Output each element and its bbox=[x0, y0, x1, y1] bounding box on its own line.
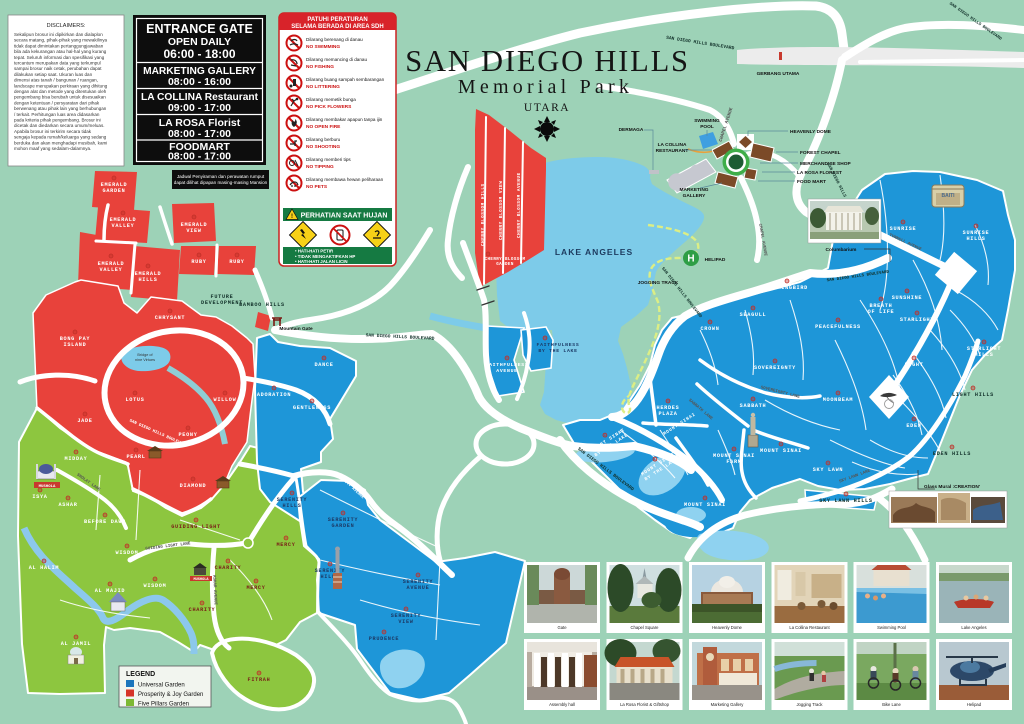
svg-text:OF LIFE: OF LIFE bbox=[868, 309, 895, 315]
svg-text:AL MAJID: AL MAJID bbox=[95, 588, 126, 594]
svg-text:dengan alat dan metode yang di: dengan alat dan metode yang ditentukan o… bbox=[14, 89, 107, 94]
svg-text:POOL: POOL bbox=[700, 124, 714, 130]
svg-text:EDEN: EDEN bbox=[906, 423, 921, 429]
svg-text:SKY LAWN HILLS: SKY LAWN HILLS bbox=[819, 498, 872, 504]
svg-text:PLAZA: PLAZA bbox=[658, 411, 677, 417]
svg-text:Columbarium: Columbarium bbox=[826, 247, 857, 253]
svg-text:MUSHOLA: MUSHOLA bbox=[39, 485, 56, 489]
svg-text:H: H bbox=[687, 254, 694, 265]
svg-text:HILLS: HILLS bbox=[282, 503, 301, 509]
svg-text:• HATI-HATI JALAN LICIN: • HATI-HATI JALAN LICIN bbox=[295, 259, 348, 264]
svg-text:LIGHT HILLS: LIGHT HILLS bbox=[952, 392, 994, 398]
svg-text:CROWN: CROWN bbox=[700, 326, 719, 332]
svg-text:GENTLENESS: GENTLENESS bbox=[293, 405, 331, 411]
svg-text:BEFORE DAWN: BEFORE DAWN bbox=[84, 519, 126, 525]
svg-text:RESTAURANT: RESTAURANT bbox=[656, 148, 689, 154]
svg-text:Dilarang berburu: Dilarang berburu bbox=[306, 137, 341, 142]
svg-text:Apabila brosur ini terkirim se: Apabila brosur ini terkirim secara tidak bbox=[14, 129, 92, 134]
svg-text:Heavenly Dome: Heavenly Dome bbox=[712, 625, 742, 630]
svg-text:CHERRY BLOSSOM HILLS: CHERRY BLOSSOM HILLS bbox=[481, 183, 486, 246]
svg-text:CHARITY: CHARITY bbox=[215, 565, 242, 571]
svg-text:Universal Garden: Universal Garden bbox=[138, 683, 185, 689]
svg-text:STARLIGHT: STARLIGHT bbox=[900, 317, 934, 323]
svg-text:GERBANG UTAMA: GERBANG UTAMA bbox=[757, 71, 800, 77]
svg-text:DISCLAIMERS:: DISCLAIMERS: bbox=[47, 23, 86, 29]
svg-text:MERCY: MERCY bbox=[246, 585, 265, 591]
svg-text:HUMMINGBIRD: HUMMINGBIRD bbox=[766, 285, 808, 291]
svg-text:WISDOM: WISDOM bbox=[116, 550, 139, 556]
svg-text:Mountain Gate: Mountain Gate bbox=[279, 326, 313, 332]
svg-text:Dilarang berenang di danau: Dilarang berenang di danau bbox=[306, 37, 363, 42]
svg-text:Dilarang buang sampah sembaran: Dilarang buang sampah sembarangan bbox=[306, 77, 385, 82]
svg-text:DEVELOPMENT: DEVELOPMENT bbox=[201, 300, 243, 306]
svg-text:Dilarang memberi tips: Dilarang memberi tips bbox=[306, 157, 351, 162]
svg-text:BY THE LAKE: BY THE LAKE bbox=[538, 348, 577, 354]
svg-text:MOONBEAM: MOONBEAM bbox=[823, 397, 854, 403]
svg-text:DERMAGA: DERMAGA bbox=[619, 127, 644, 133]
svg-text:secara matang, pihak-pihak yan: secara matang, pihak-pihak yang mewakili… bbox=[14, 38, 107, 43]
svg-text:PEONY: PEONY bbox=[178, 432, 197, 438]
svg-text:NO FISHING: NO FISHING bbox=[306, 64, 334, 70]
svg-text:LAKE ANGELES: LAKE ANGELES bbox=[555, 247, 633, 257]
svg-text:08:00 - 17:00: 08:00 - 17:00 bbox=[168, 128, 231, 140]
svg-text:Lake Angeles: Lake Angeles bbox=[961, 625, 986, 630]
svg-text:PRUDENCE: PRUDENCE bbox=[369, 636, 400, 642]
svg-text:!: ! bbox=[291, 214, 293, 220]
svg-text:PATUHI PERATURAN: PATUHI PERATURAN bbox=[307, 17, 367, 23]
svg-text:FOOD MART: FOOD MART bbox=[797, 179, 826, 185]
svg-text:pengembang bisa berubah untuk: pengembang bisa berubah untuk disesuaika… bbox=[14, 95, 106, 100]
svg-text:pada kriteria pihak pengembang: pada kriteria pihak pengembang. Brosur i… bbox=[14, 118, 101, 123]
svg-text:ADORATION: ADORATION bbox=[257, 392, 291, 398]
svg-text:GUIDING LIGHT: GUIDING LIGHT bbox=[171, 524, 221, 530]
svg-text:SKY LAWN: SKY LAWN bbox=[813, 467, 844, 473]
svg-text:HILLS: HILLS bbox=[966, 236, 985, 242]
svg-text:NO SHOOTING: NO SHOOTING bbox=[306, 144, 340, 150]
svg-text:Dilarang membawa hewan pelihar: Dilarang membawa hewan peliharaan bbox=[306, 177, 384, 182]
svg-text:ISYA: ISYA bbox=[32, 494, 47, 500]
svg-text:RUBY: RUBY bbox=[229, 259, 244, 265]
svg-text:dilakukan setiap saat. Ukuran: dilakukan setiap saat. Ukuran luas dan bbox=[14, 72, 93, 77]
svg-text:DANCE: DANCE bbox=[314, 362, 333, 368]
svg-text:Jogging Track: Jogging Track bbox=[796, 702, 823, 707]
svg-text:NO TIPPING: NO TIPPING bbox=[306, 164, 334, 170]
svg-text:CHERRY BLOSSOM: CHERRY BLOSSOM bbox=[485, 258, 526, 262]
svg-text:sampai brosur naik cetak, peru: sampai brosur naik cetak, perubahan dapa… bbox=[14, 66, 102, 71]
svg-text:Assembly hall: Assembly hall bbox=[549, 702, 575, 707]
svg-text:SABBATH: SABBATH bbox=[740, 403, 767, 409]
svg-text:LOTUS: LOTUS bbox=[125, 397, 144, 403]
svg-text:La Collina Restaurant: La Collina Restaurant bbox=[789, 625, 830, 630]
svg-text:La Rosa Florist & Giftshop: La Rosa Florist & Giftshop bbox=[620, 702, 670, 707]
svg-text:tercantum merupakan data yang: tercantum merupakan data yang terkumpul bbox=[14, 61, 101, 66]
svg-text:Sekalipun brosur ini dipikirka: Sekalipun brosur ini dipikirkan dan dial… bbox=[14, 32, 103, 37]
svg-text:GALLERY: GALLERY bbox=[683, 193, 707, 199]
svg-text:• HATI-HATI PETIR: • HATI-HATI PETIR bbox=[295, 249, 334, 254]
svg-text:SWIMMING: SWIMMING bbox=[694, 118, 720, 124]
svg-text:nine Virtues: nine Virtues bbox=[135, 358, 155, 362]
svg-text:AVENUE: AVENUE bbox=[407, 585, 430, 591]
svg-text:MIDDAY: MIDDAY bbox=[65, 456, 88, 462]
svg-text:CHARITY: CHARITY bbox=[189, 607, 216, 613]
svg-text:DIAMOND: DIAMOND bbox=[180, 483, 207, 489]
svg-text:NO PETS: NO PETS bbox=[306, 184, 328, 190]
svg-text:Marketing Gallery: Marketing Gallery bbox=[711, 702, 745, 707]
svg-text:CHERRY BLOSSOM VIEW: CHERRY BLOSSOM VIEW bbox=[499, 181, 504, 240]
svg-text:ISLAND: ISLAND bbox=[64, 342, 87, 348]
svg-text:FOREST CHAPEL: FOREST CHAPEL bbox=[800, 150, 841, 156]
svg-text:VALLEY: VALLEY bbox=[100, 267, 123, 273]
svg-text:GARDEN: GARDEN bbox=[496, 263, 514, 267]
svg-text:NO OPEN FIRE: NO OPEN FIRE bbox=[306, 124, 341, 130]
svg-text:dicetak dan diedarkan secara u: dicetak dan diedarkan secara umum/meluas… bbox=[14, 123, 104, 128]
svg-text:VALLEY: VALLEY bbox=[112, 223, 135, 229]
svg-text:HILLS: HILLS bbox=[138, 277, 157, 283]
svg-text:Gate: Gate bbox=[557, 625, 567, 630]
svg-text:/ terkait. Perhitungan luas ar: / terkait. Perhitungan luas area didasar… bbox=[14, 112, 100, 117]
svg-text:06:00 - 18:00: 06:00 - 18:00 bbox=[163, 47, 235, 61]
svg-text:NO SWIMMING: NO SWIMMING bbox=[306, 44, 340, 50]
svg-text:PERHATIAN SAAT HUJAN: PERHATIAN SAAT HUJAN bbox=[301, 213, 388, 220]
svg-text:JADE: JADE bbox=[77, 418, 92, 424]
svg-text:Bridge of: Bridge of bbox=[137, 353, 153, 357]
svg-text:PEARL: PEARL bbox=[126, 454, 145, 460]
svg-text:Bike Lane: Bike Lane bbox=[882, 702, 901, 707]
svg-text:FAITHFULNESS: FAITHFULNESS bbox=[486, 362, 529, 368]
svg-text:Swimming Pool: Swimming Pool bbox=[877, 625, 906, 630]
svg-text:CHERRY BLOSSOM AVENUE: CHERRY BLOSSOM AVENUE bbox=[517, 172, 522, 238]
svg-text:Dilarang memancing di danau: Dilarang memancing di danau bbox=[306, 57, 367, 62]
svg-text:GARDEN: GARDEN bbox=[332, 523, 355, 529]
svg-text:BAMBOO HILLS: BAMBOO HILLS bbox=[239, 302, 285, 308]
svg-text:ASHAR: ASHAR bbox=[58, 502, 77, 508]
svg-text:AL HALIM: AL HALIM bbox=[29, 565, 60, 571]
svg-text:HEAVENLY DOME: HEAVENLY DOME bbox=[790, 129, 832, 135]
svg-text:sengaja kepada rumah/keluarga: sengaja kepada rumah/keluarga yang sedan… bbox=[14, 135, 107, 140]
svg-text:WILLOW: WILLOW bbox=[214, 397, 237, 403]
svg-text:GARDEN: GARDEN bbox=[103, 188, 126, 194]
svg-text:NO LITTERING: NO LITTERING bbox=[306, 84, 340, 90]
svg-text:FAITHFULNESS: FAITHFULNESS bbox=[537, 342, 580, 348]
svg-text:tepat. Seluruh informasi dan s: tepat. Seluruh informasi dan spesifikasi… bbox=[14, 55, 105, 60]
svg-text:AL JAMIL: AL JAMIL bbox=[61, 641, 92, 647]
svg-text:MERCY: MERCY bbox=[276, 542, 295, 548]
svg-text:08:00 - 17:00: 08:00 - 17:00 bbox=[168, 151, 231, 163]
svg-text:mohon maaf yang sedalam-dalamn: mohon maaf yang sedalam-dalamnya. bbox=[14, 146, 91, 151]
svg-text:CHRYSANT: CHRYSANT bbox=[155, 315, 186, 321]
svg-text:dimensi atas tanah / bangunan: dimensi atas tanah / bangunan / ruangan, bbox=[14, 78, 98, 83]
svg-text:Helipad: Helipad bbox=[967, 702, 982, 707]
svg-text:LIGHT: LIGHT bbox=[904, 362, 923, 368]
svg-text:SEAGULL: SEAGULL bbox=[740, 312, 767, 318]
svg-text:LA COLLINA: LA COLLINA bbox=[658, 142, 687, 148]
svg-text:Jadwal Penyiraman dan perawata: Jadwal Penyiraman dan perawatan rumput bbox=[177, 174, 265, 179]
svg-text:berwenang atau pihak lain yang: berwenang atau pihak lain yang berhubung… bbox=[14, 106, 107, 111]
svg-text:AVENUE: AVENUE bbox=[496, 368, 517, 374]
svg-text:SELAMA BERADA DI AREA SDH: SELAMA BERADA DI AREA SDH bbox=[291, 24, 383, 30]
svg-text:HILLS: HILLS bbox=[974, 352, 993, 358]
svg-text:Five Pillars Garden: Five Pillars Garden bbox=[138, 702, 189, 708]
svg-text:HELIPAD: HELIPAD bbox=[705, 257, 726, 263]
svg-text:bila ada kekurangan atau hal-h: bila ada kekurangan atau hal-hal yang ku… bbox=[14, 49, 107, 54]
svg-text:MOUNT SINAI: MOUNT SINAI bbox=[684, 502, 726, 508]
svg-text:landscape merupakan perkiraan: landscape merupakan perkiraan yang dihit… bbox=[14, 83, 108, 88]
svg-text:FITRAH: FITRAH bbox=[248, 677, 271, 683]
svg-text:SOVEREIGNTY: SOVEREIGNTY bbox=[754, 365, 796, 371]
svg-text:berduka dan akan menghadapi mu: berduka dan akan menghadapi musibah, kam… bbox=[14, 140, 107, 145]
svg-text:ENTRANCE GATE: ENTRANCE GATE bbox=[146, 22, 253, 36]
svg-text:SAN DIEGO HILLS: SAN DIEGO HILLS bbox=[405, 44, 690, 78]
svg-text:MUSHOLA: MUSHOLA bbox=[193, 578, 209, 582]
svg-text:PEACEFULNESS: PEACEFULNESS bbox=[815, 324, 861, 330]
svg-text:09:00 - 17:00: 09:00 - 17:00 bbox=[168, 102, 231, 114]
svg-text:NO PICK FLOWERS: NO PICK FLOWERS bbox=[306, 104, 352, 110]
svg-text:Chapel Square: Chapel Square bbox=[631, 625, 660, 630]
svg-text:SUNSHINE: SUNSHINE bbox=[892, 295, 923, 301]
svg-text:dapat dilihat dipapan masing-m: dapat dilihat dipapan masing-masing Mans… bbox=[174, 180, 268, 185]
svg-text:RUBY: RUBY bbox=[191, 259, 206, 265]
svg-text:Dilarang memetik bunga: Dilarang memetik bunga bbox=[306, 97, 356, 102]
svg-text:FARM: FARM bbox=[726, 459, 741, 465]
svg-text:LEGEND: LEGEND bbox=[126, 671, 155, 678]
svg-text:tidak dapat dimintakan pertang: tidak dapat dimintakan pertanggungjawaba… bbox=[14, 43, 104, 48]
svg-text:dengan ketentuan / persyaratan: dengan ketentuan / persyaratan dari piha… bbox=[14, 100, 100, 105]
svg-text:EDEN HILLS: EDEN HILLS bbox=[933, 451, 971, 457]
svg-text:Dilarang membakar apapun tanpa: Dilarang membakar apapun tanpa ijin bbox=[306, 117, 383, 122]
svg-text:MARKETING: MARKETING bbox=[679, 187, 708, 193]
svg-text:SUNRISE: SUNRISE bbox=[890, 226, 917, 232]
svg-text:WISDOM: WISDOM bbox=[144, 583, 167, 589]
svg-text:VIEW: VIEW bbox=[186, 228, 201, 234]
svg-text:Prosperity & Joy Garden: Prosperity & Joy Garden bbox=[138, 692, 203, 698]
svg-text:UTARA: UTARA bbox=[524, 102, 570, 114]
svg-text:MOUNT SINAI: MOUNT SINAI bbox=[760, 448, 802, 454]
svg-text:VIEW: VIEW bbox=[398, 619, 413, 625]
svg-text:BAITI: BAITI bbox=[941, 193, 955, 199]
svg-text:08:00 - 16:00: 08:00 - 16:00 bbox=[168, 76, 231, 88]
svg-text:Memorial Park: Memorial Park bbox=[458, 76, 633, 98]
